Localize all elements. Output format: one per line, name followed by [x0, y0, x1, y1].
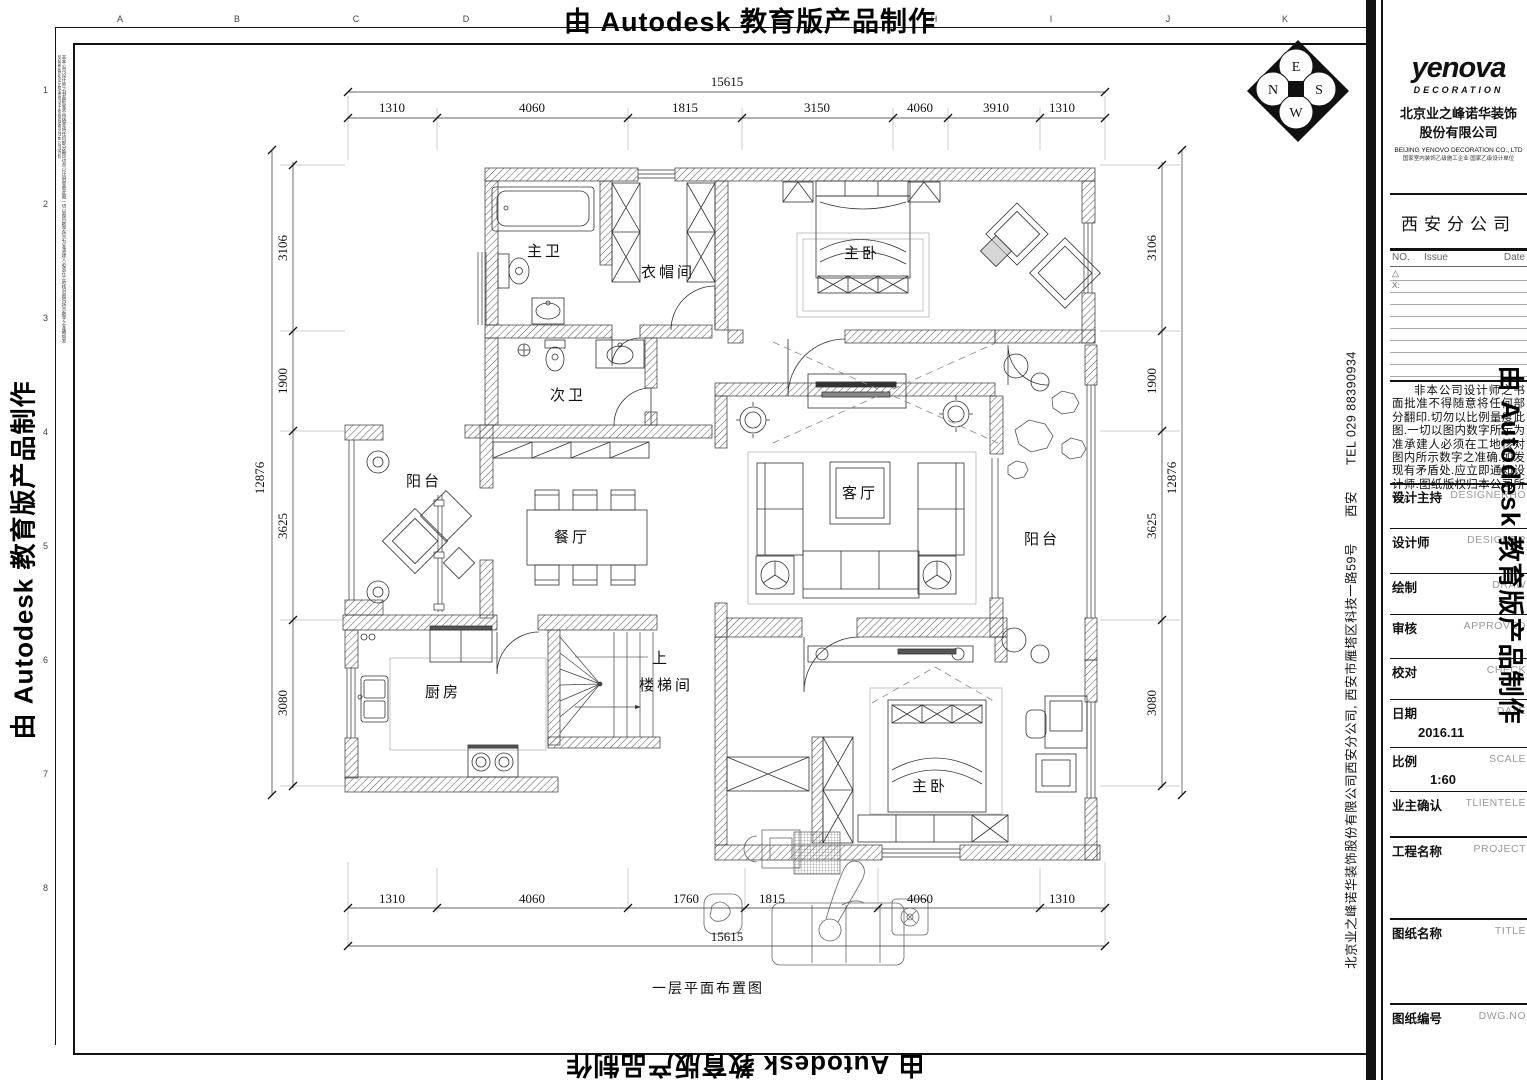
- scale-value: 1:60: [1430, 772, 1456, 787]
- room-label-balcony-right: 阳台: [1024, 531, 1060, 548]
- svg-text:1310: 1310: [379, 100, 405, 115]
- svg-text:3625: 3625: [1144, 513, 1159, 539]
- field-en: TLIENTELE: [1465, 797, 1526, 809]
- field-en: PROJECT: [1473, 843, 1526, 855]
- company-name-cn-2: 股份有限公司: [1390, 122, 1527, 141]
- company-name-cn-1: 北京业之峰诺华装饰: [1390, 103, 1527, 122]
- titleblock-separator-thin: [1381, 0, 1383, 1080]
- dim-top-total: 15615: [711, 74, 744, 89]
- svg-text:1815: 1815: [759, 891, 785, 906]
- svg-text:3080: 3080: [1144, 690, 1159, 716]
- company-address-vertical: 北京业之峰诺华装饰股份有限公司西安分公司, 西安市雁塔区科技一路59号 西安 T…: [1341, 351, 1360, 969]
- svg-text:3080: 3080: [275, 690, 290, 716]
- compass-s: S: [1315, 83, 1323, 98]
- svg-text:1760: 1760: [673, 891, 699, 906]
- svg-text:1310: 1310: [1049, 891, 1075, 906]
- svg-text:3106: 3106: [1144, 235, 1159, 262]
- compass-w: W: [1289, 106, 1303, 121]
- svg-text:1310: 1310: [379, 891, 405, 906]
- field-label: 工程名称: [1392, 841, 1442, 860]
- room-label-master-bedroom-top: 主卧: [844, 245, 880, 262]
- compass-icon: E N S W: [1247, 40, 1349, 142]
- svg-text:4060: 4060: [519, 100, 545, 115]
- field-en: TITLE: [1495, 925, 1526, 937]
- svg-text:1900: 1900: [1144, 368, 1159, 394]
- dim-right-total: 12876: [1164, 461, 1179, 494]
- room-label-balcony-left: 阳台: [406, 473, 442, 490]
- field-label: 图纸编号: [1392, 1008, 1442, 1027]
- field-label: 图纸名称: [1392, 923, 1442, 942]
- room-label-cloakroom: 衣帽间: [641, 264, 695, 281]
- room-label-stairwell: 楼梯间: [639, 677, 693, 694]
- field-label: 业主确认: [1392, 795, 1442, 814]
- room-label-dining: 餐厅: [554, 529, 590, 546]
- svg-text:1900: 1900: [275, 368, 290, 394]
- field-label: 日期: [1392, 703, 1417, 722]
- room-label-living: 客厅: [842, 485, 878, 502]
- field-label: 设计主持: [1392, 487, 1442, 506]
- titleblock-separator-thick: [1366, 0, 1376, 1080]
- room-label-master-bath: 主卫: [527, 243, 563, 260]
- room-label-second-bath: 次卫: [550, 387, 586, 404]
- furniture: [358, 181, 1100, 843]
- brand-logo: yenova: [1390, 52, 1527, 85]
- field-label: 绘制: [1392, 577, 1417, 596]
- brand-sub: DECORATION: [1390, 85, 1527, 95]
- cad-sheet: A B C D H I J K 1 2 3 4 5 6 7 8 非本公司设计师之…: [0, 0, 1527, 1080]
- svg-text:4060: 4060: [907, 891, 933, 906]
- watermark-right: 由 Autodesk 教育版产品制作: [1494, 366, 1527, 725]
- branch-name: 西安分公司: [1390, 210, 1527, 235]
- svg-text:3625: 3625: [275, 513, 290, 539]
- room-label-kitchen: 厨房: [425, 684, 461, 701]
- svg-text:3910: 3910: [983, 100, 1009, 115]
- dim-left-total: 12876: [252, 461, 267, 494]
- field-label: 设计师: [1392, 532, 1430, 551]
- walls: [343, 168, 1100, 860]
- floor-plan-canvas: 15615 1310 4060 1815 3150 4060 3910 1310…: [0, 0, 1527, 1080]
- svg-text:1815: 1815: [672, 100, 698, 115]
- field-en: DWG.NO: [1479, 1010, 1526, 1022]
- dim-bottom-total: 15615: [711, 929, 744, 944]
- field-en: SCALE: [1489, 753, 1526, 765]
- svg-text:3106: 3106: [275, 235, 290, 262]
- room-label-master-bedroom-bottom: 主卧: [912, 778, 948, 795]
- plan-title: 一层平面布置图: [652, 981, 764, 997]
- revision-triangle-icon: △: [1392, 268, 1399, 279]
- revision-x-label: X:: [1392, 281, 1400, 290]
- svg-text:1310: 1310: [1049, 100, 1075, 115]
- field-label: 比例: [1392, 751, 1417, 770]
- compass-n: N: [1268, 83, 1278, 98]
- stair-up-label: 上: [652, 650, 670, 667]
- svg-text:4060: 4060: [519, 891, 545, 906]
- field-label: 校对: [1392, 662, 1417, 681]
- svg-text:4060: 4060: [907, 100, 933, 115]
- svg-text:3150: 3150: [804, 100, 830, 115]
- company-name-en: BEIJING YENOVO DECORATION CO., LTD: [1390, 147, 1527, 154]
- company-cert: 国家室内装饰乙级施工企业 国家乙级设计单位: [1390, 154, 1527, 162]
- date-value: 2016.11: [1418, 725, 1464, 740]
- compass-e: E: [1292, 60, 1301, 75]
- field-label: 审核: [1392, 618, 1417, 637]
